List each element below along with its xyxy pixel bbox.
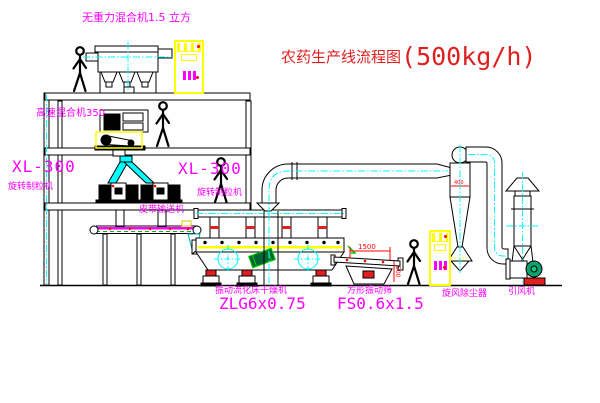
title-text: 农药生产线流程图: [281, 46, 401, 67]
label-granulator-left-name: 旋转制粒机: [8, 183, 53, 192]
cabinet-display: [434, 244, 446, 251]
indicator-light-icon: [443, 266, 446, 269]
label-induced-fan: 引风机: [508, 288, 535, 297]
cabinet-buttons: [431, 261, 449, 270]
label-belt-conveyor: 皮带输送机: [139, 206, 184, 215]
drawing-canvas: 400 1500: [0, 0, 600, 403]
granulator-right: [138, 183, 182, 203]
svg-text:500: 500: [394, 266, 401, 278]
granulator-left: [96, 183, 140, 203]
y-chute: [108, 156, 154, 183]
belt-conveyor: [90, 221, 201, 285]
mixer-drive-belt: [101, 135, 134, 146]
exhaust-duct: [262, 164, 452, 203]
induced-draft-fan: [506, 259, 545, 285]
page-title: 农药生产线流程图(500kg/h): [281, 42, 536, 71]
label-screen-model: FS0.6x1.5: [337, 296, 424, 312]
label-dryer-model: ZLG6x0.75: [219, 296, 306, 312]
label-cyclone: 旋风除尘器: [442, 290, 487, 299]
control-cabinet-1: [174, 40, 204, 94]
indicator-light-icon: [444, 235, 447, 238]
gravityless-mixer: [86, 46, 172, 93]
label-granulator-right-name: 旋转制粒机: [197, 189, 242, 198]
indicator-light-icon: [197, 45, 200, 48]
label-granulator-left-model: XL-300: [12, 159, 76, 175]
drop-pipe: [116, 210, 124, 227]
person-figure: [157, 102, 170, 146]
person-figure: [74, 47, 87, 91]
dimension-1500: 1500: [350, 243, 390, 260]
svg-text:1500: 1500: [358, 243, 376, 251]
label-high-speed-mixer: 高速混合机350: [36, 109, 105, 119]
cyclone-dim-text: 400: [454, 180, 464, 186]
cabinet-display: [181, 54, 197, 61]
person-figure: [408, 240, 421, 284]
label-granulator-right-model: XL-300: [178, 161, 242, 177]
control-cabinet-2: [429, 230, 451, 286]
label-gravityless-mixer: 无重力混合机1.5 立方: [82, 12, 191, 23]
indicator-light-icon: [196, 76, 199, 79]
title-capacity: (500kg/h): [401, 42, 536, 71]
outlet-pipe: [466, 147, 508, 264]
